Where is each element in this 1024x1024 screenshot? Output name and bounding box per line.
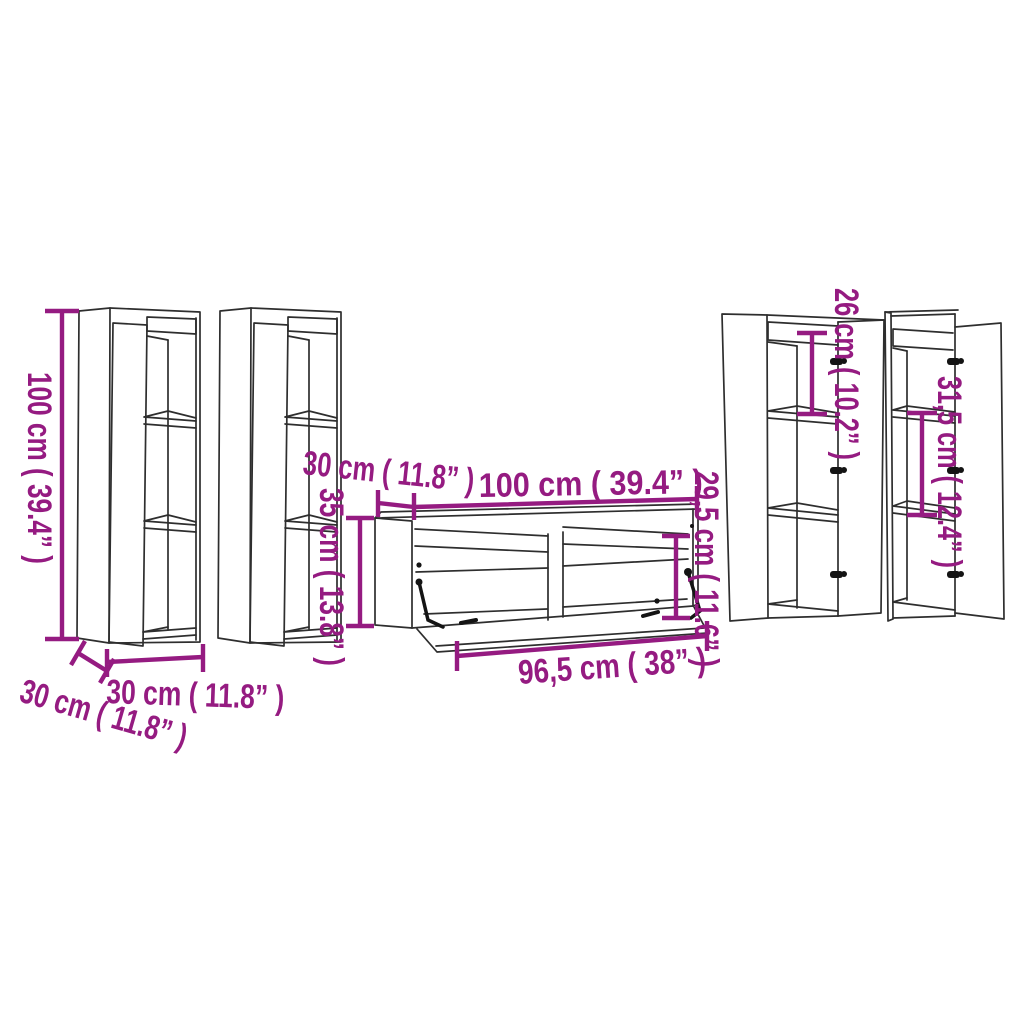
cabinet-side-panel: [885, 312, 893, 621]
furniture-dimension-diagram: 100 cm ( 39.4” ) 30 cm ( 11.8” ) 30 cm (…: [0, 0, 1024, 1024]
dim-left-cabinet-height: 100 cm ( 39.4” ): [20, 311, 79, 639]
knob-right: [654, 598, 659, 603]
knob-left: [416, 562, 421, 567]
cabinet-side-panel: [77, 308, 110, 643]
tv-stand-top-rails: [415, 527, 688, 552]
cabinet-top-edge: [767, 315, 884, 320]
right-cabinet-top-section-label: 26 cm ( 10.2” ): [827, 288, 865, 460]
dim-left-cabinet-width: 30 cm ( 11.8” ): [106, 644, 285, 717]
left-cabinet-height-label: 100 cm ( 39.4” ): [20, 372, 58, 564]
tv-stand-width-label: 100 cm ( 39.4” ): [478, 463, 703, 505]
tv-stand-left-panel: [375, 518, 412, 628]
cabinet-bottom-shelf: [893, 598, 955, 618]
tv-stand: [375, 504, 708, 652]
cabinet-top-rail: [893, 329, 953, 351]
dim-right-cabinet-middle-section: 31,5 cm ( 12.4” ): [907, 376, 968, 568]
diagram-canvas: 100 cm ( 39.4” ) 30 cm ( 11.8” ) 30 cm (…: [0, 0, 1024, 1024]
dim-right-cabinet-top-section: 26 cm ( 10.2” ): [797, 288, 865, 460]
cabinet-shelf-lower: [768, 503, 838, 522]
cabinet-top-rail: [147, 317, 196, 340]
tv-stand-height-label: 35 cm ( 13.8” ): [312, 488, 350, 666]
dim-tv-stand-height: 35 cm ( 13.8” ): [312, 488, 374, 666]
door-stay-left-bracket: [416, 579, 423, 586]
cabinet-open-door: [109, 323, 147, 646]
tv-stand-center-partition: [548, 532, 563, 620]
cabinet-shelf-upper: [144, 411, 196, 428]
left-cabinet-width-label: 30 cm ( 11.8” ): [106, 673, 285, 717]
right-cabinet-middle-section-label: 31,5 cm ( 12.4” ): [930, 376, 968, 568]
cabinet-top-edge: [885, 310, 958, 316]
dimension-line: [378, 490, 414, 520]
cabinet-shelf-lower: [144, 515, 196, 532]
dimension-line: [797, 333, 827, 414]
cabinet-bottom-shelf: [143, 627, 196, 639]
dimension-line: [107, 644, 203, 677]
door-stay-left: [419, 582, 443, 627]
cabinet-bottom-shelf: [768, 600, 838, 618]
tv-stand-back-panel-lines: [416, 559, 688, 572]
cabinet-side-panel: [722, 314, 768, 621]
dim-tv-stand-inner-width: 96,5 cm ( 38” ): [457, 621, 707, 692]
wall-cabinet-1: [77, 308, 200, 646]
cabinet-frame: [109, 308, 200, 643]
door-hinge-mark-right: [643, 612, 658, 616]
